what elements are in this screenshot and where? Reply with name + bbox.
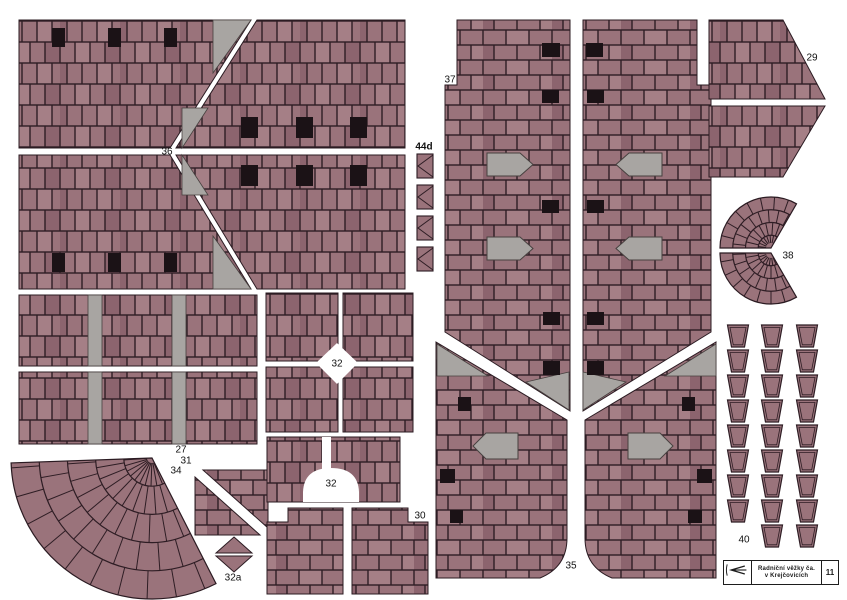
piece-32-q1 xyxy=(266,293,338,361)
logo-title-line1: Radniční věžky ča. xyxy=(758,566,815,573)
part-number-label: 44d xyxy=(415,142,432,153)
model-sheet-page: 3644d3729382731323232a34303540 Radniční … xyxy=(0,0,847,600)
piece-32a-bottom xyxy=(216,556,252,572)
logo-title: Radniční věžky ča. v Krejčovicích xyxy=(752,561,821,584)
part-number-label: 32a xyxy=(225,573,242,584)
part-number-label: 40 xyxy=(738,535,750,546)
piece-30-left xyxy=(267,508,343,594)
part-number-label: 31 xyxy=(180,456,192,467)
part-number-label: 34 xyxy=(170,466,182,477)
piece-32-q4 xyxy=(343,367,413,432)
publisher-logo-box: Radniční věžky ča. v Krejčovicích 11 xyxy=(723,560,839,585)
sheet-svg: 3644d3729382731323232a34303540 xyxy=(0,0,847,600)
piece-37-right xyxy=(583,20,711,411)
logo-title-line2: v Krejčovicích xyxy=(765,573,809,580)
piece-27-top xyxy=(19,295,257,366)
piece-32-q3 xyxy=(266,367,338,432)
piece-29-bottom xyxy=(709,106,825,177)
part-number-label: 37 xyxy=(444,75,456,86)
part-number-label: 32 xyxy=(331,359,343,370)
piece-40-pots xyxy=(728,325,818,547)
part-number-label: 36 xyxy=(161,147,173,158)
piece-32-q2 xyxy=(343,293,413,361)
part-number-label: 27 xyxy=(175,445,187,456)
piece-38-top xyxy=(720,197,797,248)
piece-37-left xyxy=(445,20,570,411)
piece-32a-top xyxy=(216,537,252,553)
piece-27-bottom xyxy=(19,372,257,444)
part-number-label: 38 xyxy=(782,251,794,262)
piece-34-fan xyxy=(11,458,216,599)
part-number-label: 29 xyxy=(806,53,818,64)
logo-sheet-number: 11 xyxy=(821,561,838,584)
arrow-left-icon xyxy=(724,561,748,579)
part-number-label: 32 xyxy=(325,479,337,490)
part-number-label: 35 xyxy=(565,561,577,572)
piece-44d-strips xyxy=(417,154,433,271)
part-number-label: 30 xyxy=(414,511,426,522)
logo-arrow-cell xyxy=(724,561,752,584)
